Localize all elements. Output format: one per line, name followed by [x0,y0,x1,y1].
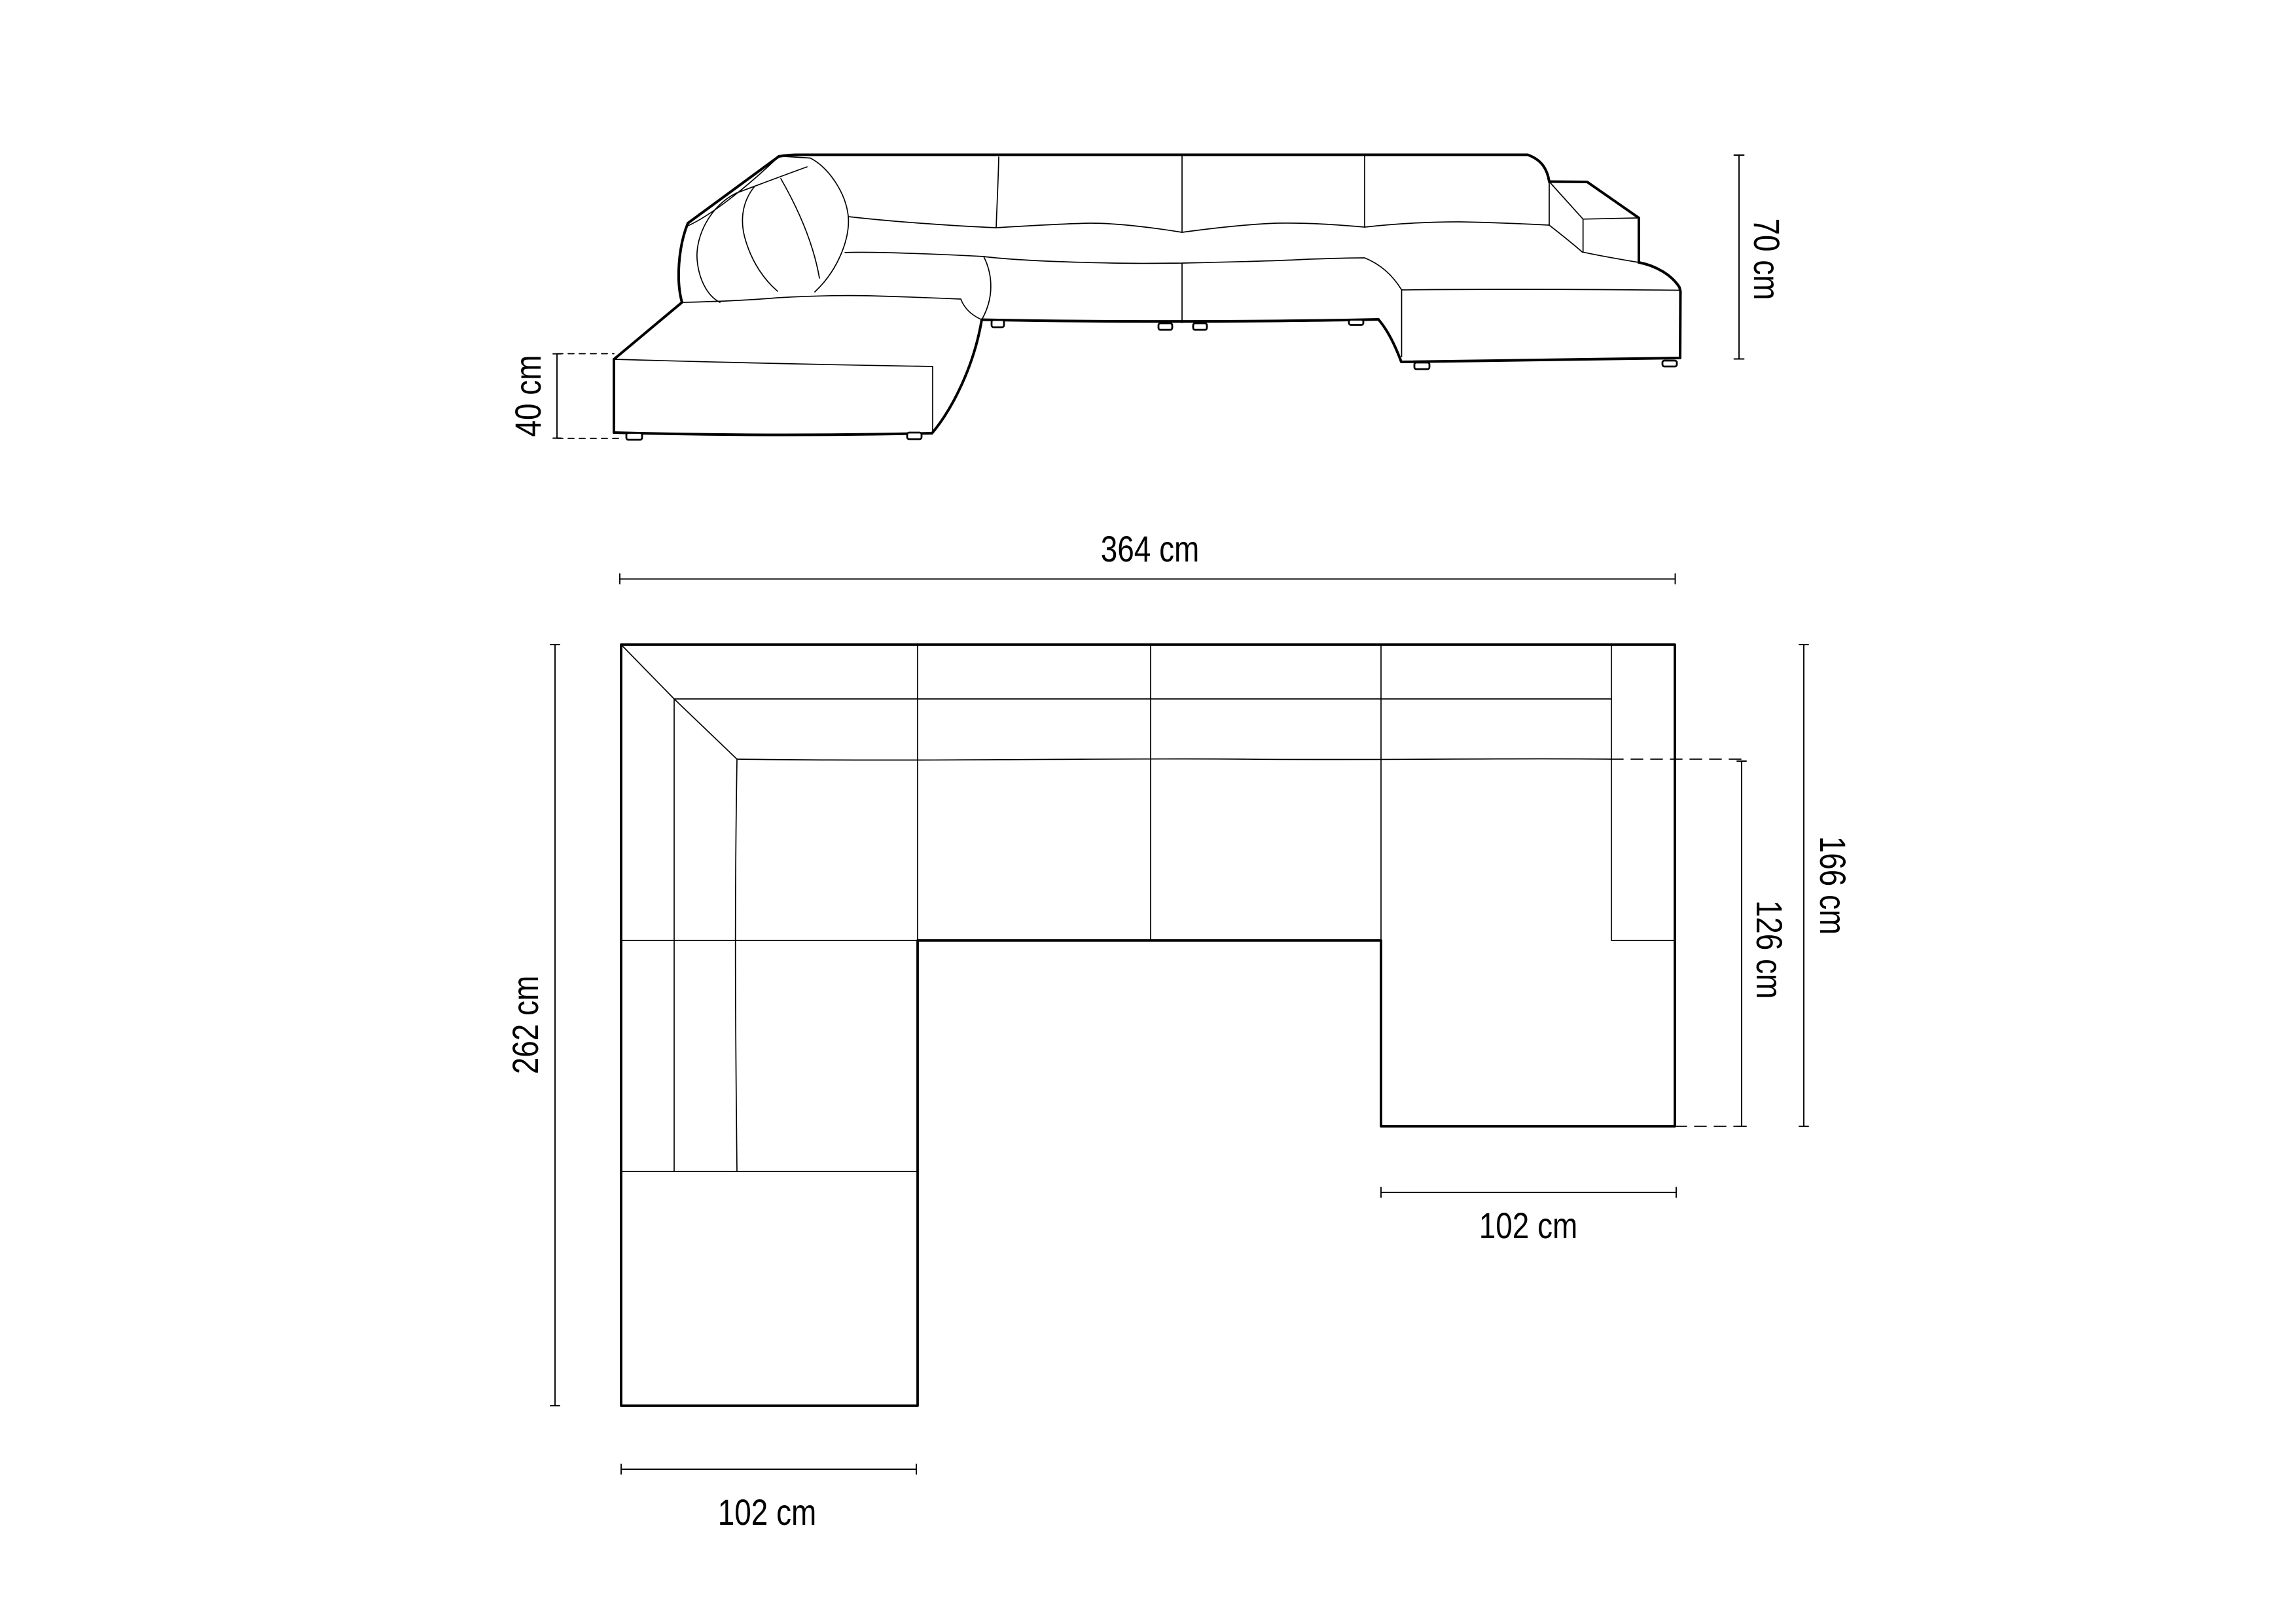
svg-text:364 cm: 364 cm [1101,529,1200,569]
svg-text:126 cm: 126 cm [1749,901,1789,999]
svg-text:102 cm: 102 cm [718,1492,817,1533]
svg-text:262 cm: 262 cm [505,976,546,1075]
svg-text:70 cm: 70 cm [1746,218,1787,300]
svg-text:102 cm: 102 cm [1479,1205,1578,1246]
svg-text:166 cm: 166 cm [1812,836,1853,935]
svg-text:40 cm: 40 cm [508,355,548,437]
